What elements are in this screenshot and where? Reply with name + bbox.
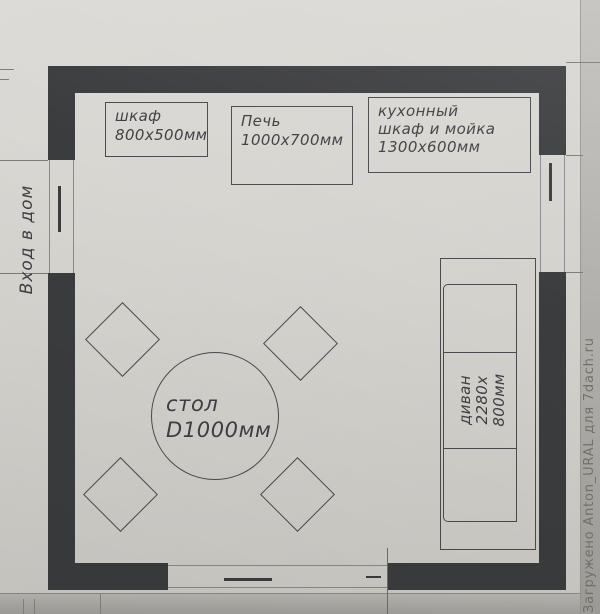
cabinet-size: 800х500мм — [115, 126, 207, 145]
door-leaf-line — [58, 186, 61, 232]
sofa-size-line1: 2280х — [474, 354, 491, 446]
window-bottom-outer-line — [168, 565, 388, 566]
table-label: стол D1000мм — [166, 391, 272, 443]
table-name: стол — [166, 391, 272, 417]
paper-mark-top-right — [566, 62, 600, 63]
floor-plan-photo: Вход в дом шкаф 800х500мм Печь 1000х700м… — [0, 0, 600, 614]
chair-top-left — [85, 302, 160, 377]
table-size: D1000мм — [166, 417, 272, 443]
paper-mark-top-left-1 — [0, 69, 14, 70]
window-bottom-sash-line — [224, 578, 272, 581]
stove-name: Печь — [241, 112, 352, 131]
window-right-tick-top — [566, 155, 583, 156]
wall-bottom-right — [388, 563, 566, 590]
paper-mark-bottom-left-2 — [34, 599, 35, 614]
window-bottom-edge-extension-line — [387, 548, 388, 614]
paper-mark-bottom-left-3 — [100, 594, 101, 614]
paper-mark-bottom-left-1 — [23, 599, 24, 614]
wall-right-lower — [539, 272, 566, 590]
kitchen-unit-box: кухонный шкаф и мойка 1300х600мм — [368, 97, 531, 173]
kitchen-unit-name-line2: шкаф и мойка — [378, 120, 530, 138]
door-opening-outer-line — [49, 160, 50, 273]
stove-size: 1000х700мм — [241, 131, 352, 150]
paper-mark-top-left-2 — [0, 79, 9, 80]
cabinet-name: шкаф — [115, 107, 207, 126]
door-opening-inner-line — [73, 160, 74, 273]
wall-left-lower — [48, 273, 75, 590]
window-bottom-small-dash — [366, 576, 381, 578]
kitchen-unit-size: 1300х600мм — [378, 138, 530, 156]
entrance-label: Вход в дом — [16, 157, 38, 322]
kitchen-unit-name-line1: кухонный — [378, 102, 530, 120]
sofa-cushion-divider-2 — [444, 448, 516, 450]
sofa-name: диван — [457, 354, 474, 446]
chair-top-right — [263, 306, 338, 381]
wall-right-upper — [539, 66, 566, 155]
sofa-size-line2: 800мм — [491, 354, 508, 446]
stove-box: Печь 1000х700мм — [231, 106, 353, 185]
sofa-cushion-divider-1 — [444, 352, 516, 354]
window-right-outer-line — [540, 155, 541, 272]
cabinet-box: шкаф 800х500мм — [105, 102, 208, 157]
wall-left-upper — [48, 66, 75, 160]
window-right-inner-line — [564, 155, 565, 272]
window-right-sash-line — [549, 163, 552, 201]
window-right-tick-bottom — [566, 272, 583, 273]
window-bottom-inner-line — [168, 587, 388, 588]
chair-bottom-right — [260, 457, 335, 532]
wall-top — [48, 66, 566, 93]
sofa-label: диван 2280х 800мм — [457, 354, 508, 446]
floor-plan: Вход в дом шкаф 800х500мм Печь 1000х700м… — [0, 0, 600, 614]
chair-bottom-left — [83, 457, 158, 532]
watermark-text: Загружено Anton_URAL для 7dach.ru — [582, 325, 598, 613]
wall-bottom-left — [48, 563, 168, 590]
